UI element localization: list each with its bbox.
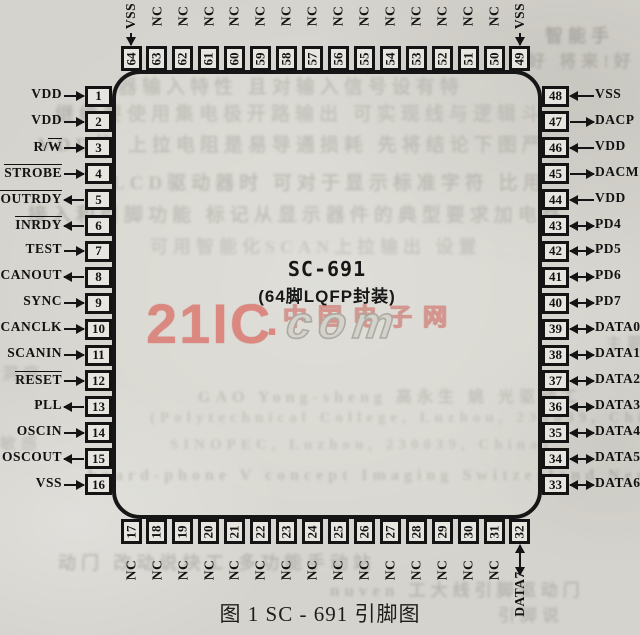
pin-direction-arrow	[570, 479, 594, 491]
pin-direction-arrow	[514, 545, 526, 575]
pin-label-rotated: NC	[201, 6, 217, 27]
pin-label-text-overlined: RESET	[15, 371, 62, 388]
pin-direction-arrow	[64, 427, 84, 439]
pin-label-text: NC	[408, 560, 423, 581]
pin-50-label: NC	[484, 0, 504, 32]
pin-direction-arrow	[570, 349, 594, 361]
pin-label-rotated: NC	[253, 560, 269, 581]
pin-label-rotated: NC	[175, 560, 191, 581]
pin-33-square: 33	[542, 474, 569, 495]
pin-40-square: 40	[542, 293, 569, 314]
pin-number: 15	[92, 451, 105, 467]
pin-12-square: 12	[85, 370, 112, 391]
pin-3-square: 3	[85, 137, 112, 158]
pin-10-square: 10	[85, 319, 112, 340]
pin-number: 42	[549, 243, 562, 259]
pin-label-text: DATA4	[595, 423, 640, 438]
pin-34-square: 34	[542, 448, 569, 469]
pin-14-square: 14	[85, 422, 112, 443]
pin-number: 51	[460, 52, 476, 65]
pin-13-square: 13	[85, 396, 112, 417]
pin-direction-arrow	[64, 220, 84, 232]
pin-direction-arrow	[64, 271, 84, 283]
pin-number: 61	[201, 52, 217, 65]
pin-number: 30	[460, 525, 476, 538]
pin-direction-arrow	[570, 245, 594, 257]
pin-16-label: VSS	[36, 475, 62, 495]
pin-label-text: NC	[201, 6, 216, 27]
pin-22-square: 22	[250, 519, 271, 544]
pin-46-label: VDD	[595, 138, 626, 158]
pin-direction-arrow	[64, 323, 84, 335]
pin-direction-arrow	[570, 297, 594, 309]
arrowhead-icon	[76, 298, 85, 308]
pin-5-square: 5	[85, 189, 112, 210]
pin-number: 21	[227, 525, 243, 538]
pin-number: 1	[95, 88, 102, 104]
pin-33-label: DATA6	[595, 475, 640, 495]
pin-label-text: NC	[227, 560, 242, 581]
pin-13-label: PLL	[34, 397, 62, 417]
pin-number: 28	[408, 525, 424, 538]
pin-label-text: DATA1	[595, 345, 640, 360]
pin-label-rotated: NC	[330, 6, 346, 27]
pin-number: 19	[175, 525, 191, 538]
pin-number: 58	[279, 52, 295, 65]
pin-55-square: 55	[354, 46, 375, 71]
pin-label-text: DATA6	[595, 475, 640, 490]
pin-42-square: 42	[542, 241, 569, 262]
pin-number: 27	[382, 525, 398, 538]
pin-label-rotated: NC	[434, 6, 450, 27]
pin-direction-arrow	[570, 453, 594, 465]
pin-number: 59	[253, 52, 269, 65]
pin-number: 5	[95, 192, 102, 208]
pin-label-text: NC	[486, 6, 501, 27]
pin-17-square: 17	[121, 519, 142, 544]
pin-number: 31	[486, 525, 502, 538]
chip-name: SC-691	[116, 257, 538, 281]
pin-direction-arrow	[570, 375, 594, 387]
pin-26-square: 26	[354, 519, 375, 544]
pin-label-text: SCANOUT	[0, 267, 62, 282]
pin-9-label: SYNC	[23, 293, 62, 313]
pin-label-text: NC	[279, 6, 294, 27]
arrowhead-icon	[586, 117, 595, 127]
pin-53-square: 53	[406, 46, 427, 71]
arrowhead-icon	[76, 246, 85, 256]
pin-28-square: 28	[406, 519, 427, 544]
pin-number: 35	[549, 425, 562, 441]
pin-21-square: 21	[224, 519, 245, 544]
arrowhead-icon	[76, 324, 85, 334]
arrowhead-icon	[569, 272, 578, 282]
pin-37-square: 37	[542, 370, 569, 391]
pin-42-label: PD5	[595, 241, 621, 261]
pin-52-label: NC	[432, 0, 452, 32]
pin-64-square: 64	[121, 46, 142, 71]
pin-14-label: OSCIN	[17, 423, 62, 443]
pin-52-square: 52	[432, 46, 453, 71]
pin-number: 55	[356, 52, 372, 65]
pin-label-rotated: NC	[175, 6, 191, 27]
pin-number: 57	[305, 52, 321, 65]
pin-label-text: NC	[175, 6, 190, 27]
arrowhead-icon	[586, 402, 595, 412]
pin-label-rotated: NC	[330, 560, 346, 581]
pin-direction-arrow	[64, 142, 84, 154]
pin-48-label: VSS	[595, 86, 621, 106]
pin-8-label: SCANOUT	[0, 267, 62, 287]
pin-17-label: NC	[121, 548, 141, 592]
pin-4-square: 4	[85, 163, 112, 184]
pin-51-square: 51	[458, 46, 479, 71]
pin-40-label: PD7	[595, 293, 621, 313]
pin-number: 44	[549, 192, 562, 208]
pin-number: 29	[434, 525, 450, 538]
arrowhead-icon	[569, 402, 578, 412]
pin-label-rotated: NC	[305, 560, 321, 581]
pin-41-square: 41	[542, 267, 569, 288]
pin-label-text-overlined: STROBE	[4, 164, 62, 181]
pin-41-label: PD6	[595, 267, 621, 287]
pin-64-label: VSS	[121, 0, 141, 32]
pin-label-text: VSS	[595, 86, 621, 101]
pin-number: 64	[123, 52, 139, 65]
pin-63-label: NC	[147, 0, 167, 32]
pin-20-label: NC	[199, 548, 219, 592]
pin-label-rotated: NC	[356, 560, 372, 581]
pin-39-label: DATA0	[595, 319, 640, 339]
pin-number: 23	[279, 525, 295, 538]
pin-number: 13	[92, 399, 105, 415]
arrowhead-icon	[126, 37, 136, 46]
pin-direction-arrow	[570, 168, 594, 180]
pin-55-label: NC	[354, 0, 374, 32]
pin-15-square: 15	[85, 448, 112, 469]
pin-59-label: NC	[251, 0, 271, 32]
pin-label-rotated: VSS	[123, 3, 139, 29]
arrowhead-icon	[569, 91, 578, 101]
pin-label-text: NC	[305, 560, 320, 581]
pin-58-label: NC	[277, 0, 297, 32]
pin-label-text: NC	[149, 560, 164, 581]
arrowhead-icon	[586, 324, 595, 334]
pin-label-text: PD6	[595, 267, 621, 282]
pin-44-square: 44	[542, 189, 569, 210]
pin-label-text: NC	[253, 560, 268, 581]
pin-label-rotated: NC	[460, 6, 476, 27]
arrowhead-icon	[569, 454, 578, 464]
pin-31-square: 31	[484, 519, 505, 544]
pin-47-label: DACP	[595, 112, 635, 132]
pin-direction-arrow	[64, 168, 84, 180]
pin-number: 41	[549, 269, 562, 285]
pin-number: 32	[512, 525, 528, 538]
pin-1-label: VDD	[31, 86, 62, 106]
pin-label-text: DACM	[595, 164, 639, 179]
pin-number: 62	[175, 52, 191, 65]
pin-label-rotated: NC	[253, 6, 269, 27]
pin-direction-arrow	[570, 401, 594, 413]
pin-direction-arrow	[64, 194, 84, 206]
pin-34-label: DATA5	[595, 449, 640, 469]
pin-16-square: 16	[85, 474, 112, 495]
pin-label-rotated: NC	[279, 6, 295, 27]
arrowhead-icon	[76, 91, 85, 101]
pin-27-label: NC	[380, 548, 400, 592]
pin-direction-arrow	[64, 401, 84, 413]
pin-25-label: NC	[328, 548, 348, 592]
pin-number: 43	[549, 218, 562, 234]
pin-label-rotated: NC	[382, 6, 398, 27]
pin-label-text: NC	[253, 6, 268, 27]
pin-32-square: 32	[509, 519, 530, 544]
pin-35-square: 35	[542, 422, 569, 443]
pin-57-label: NC	[303, 0, 323, 32]
pin-1-square: 1	[85, 86, 112, 107]
pin-60-square: 60	[224, 46, 245, 71]
arrowhead-icon	[63, 272, 72, 282]
pin-number: 9	[95, 295, 102, 311]
pin-label-text: NC	[227, 6, 242, 27]
pin-59-square: 59	[250, 46, 271, 71]
pin-54-label: NC	[380, 0, 400, 32]
pin-label-text: PD4	[595, 216, 621, 231]
pin-number: 25	[330, 525, 346, 538]
pin-label-text-overlined: OUTRDY	[0, 190, 62, 207]
pin-21-label: NC	[225, 548, 245, 592]
pin-label-text: DATA0	[595, 319, 640, 334]
arrowhead-icon	[586, 298, 595, 308]
pin-46-square: 46	[542, 137, 569, 158]
pin-19-square: 19	[172, 519, 193, 544]
pin-label-text: DATA5	[595, 449, 640, 464]
pin-7-square: 7	[85, 241, 112, 262]
pin-60-label: NC	[225, 0, 245, 32]
pin-label-text-overlined: INRDY	[15, 216, 62, 233]
figure-caption: 图 1 SC - 691 引脚图	[0, 598, 640, 628]
pin-6-square: 6	[85, 215, 112, 236]
pin-38-square: 38	[542, 345, 569, 366]
pin-61-square: 61	[198, 46, 219, 71]
pin-direction-arrow	[570, 323, 594, 335]
pin-61-label: NC	[199, 0, 219, 32]
pin-23-square: 23	[276, 519, 297, 544]
arrowhead-icon	[63, 195, 72, 205]
pin-56-square: 56	[328, 46, 349, 71]
pin-54-square: 54	[380, 46, 401, 71]
pin-57-square: 57	[302, 46, 323, 71]
arrowhead-icon	[63, 221, 72, 231]
pin-direction-arrow	[570, 90, 594, 102]
pin-9-square: 9	[85, 293, 112, 314]
pin-5-label: OUTRDY	[0, 190, 62, 210]
pin-number: 16	[92, 477, 105, 493]
pin-47-square: 47	[542, 111, 569, 132]
pin-number: 11	[92, 347, 104, 363]
pin-label-text: NC	[460, 560, 475, 581]
pin-label-text: OSCIN	[17, 423, 62, 438]
pin-29-label: NC	[432, 548, 452, 592]
arrowhead-icon	[586, 428, 595, 438]
pin-18-square: 18	[146, 519, 167, 544]
pin-label-text: NC	[149, 6, 164, 27]
pin-direction-arrow	[570, 142, 594, 154]
pin-number: 56	[330, 52, 346, 65]
pin-38-label: DATA1	[595, 345, 640, 365]
pin-4-label: STROBE	[4, 164, 62, 184]
pin-label-rotated: NC	[434, 560, 450, 581]
pin-36-square: 36	[542, 396, 569, 417]
pin-number: 22	[253, 525, 269, 538]
pin-label-text: VSS	[512, 3, 527, 29]
pin-number: 8	[95, 269, 102, 285]
arrowhead-icon	[569, 350, 578, 360]
pin-direction-arrow	[570, 427, 594, 439]
pin-2-square: 2	[85, 111, 112, 132]
pin-number: 18	[149, 525, 165, 538]
pin-19-label: NC	[173, 548, 193, 592]
pin-direction-arrow	[64, 479, 84, 491]
pin-10-label: SCANCLK	[0, 319, 62, 339]
arrowhead-icon	[569, 143, 578, 153]
arrowhead-icon	[515, 544, 525, 553]
pin-20-square: 20	[198, 519, 219, 544]
pin-6-label: INRDY	[15, 216, 62, 236]
pin-number: 36	[549, 399, 562, 415]
arrowhead-icon	[76, 350, 85, 360]
pin-direction-arrow	[64, 116, 84, 128]
pin-18-label: NC	[147, 548, 167, 592]
pin-label-text: VDD	[595, 138, 626, 153]
pin-37-label: DATA2	[595, 371, 640, 391]
pin-number: 4	[95, 166, 102, 182]
pin-43-label: PD4	[595, 216, 621, 236]
pin-number: 17	[123, 525, 139, 538]
pin-label-text: NC	[382, 6, 397, 27]
pin-number: 10	[92, 321, 105, 337]
pin-number: 49	[512, 52, 528, 65]
pin-label-rotated: NC	[486, 560, 502, 581]
pin-12-label: RESET	[15, 371, 62, 391]
pin-label-text: NC	[382, 560, 397, 581]
pin-39-square: 39	[542, 319, 569, 340]
arrowhead-icon	[586, 272, 595, 282]
pin-label-text: NC	[486, 560, 501, 581]
pin-label-text: SCANCLK	[0, 319, 62, 334]
arrowhead-icon	[515, 37, 525, 46]
pin-number: 52	[434, 52, 450, 65]
pin-62-square: 62	[172, 46, 193, 71]
arrowhead-icon	[586, 376, 595, 386]
pin-label-text: NC	[408, 6, 423, 27]
pin-direction-arrow	[514, 33, 526, 45]
pin-number: 26	[356, 525, 372, 538]
pin-8-square: 8	[85, 267, 112, 288]
pin-label-rotated: NC	[227, 560, 243, 581]
pin-62-label: NC	[173, 0, 193, 32]
pin-number: 12	[92, 373, 105, 389]
pin-number: 37	[549, 373, 562, 389]
pin-49-square: 49	[509, 46, 530, 71]
pin-label-text-overlined: W	[48, 138, 62, 155]
pin-label-text: SYNC	[23, 293, 62, 308]
arrowhead-icon	[586, 169, 595, 179]
pin-label-text: NC	[201, 560, 216, 581]
pin-number: 46	[549, 140, 562, 156]
pin-number: 47	[549, 114, 562, 130]
pin-63-square: 63	[146, 46, 167, 71]
pin-label-text: NC	[356, 6, 371, 27]
pin-27-square: 27	[380, 519, 401, 544]
pin-label-text: NC	[123, 560, 138, 581]
arrowhead-icon	[569, 480, 578, 490]
pin-direction-arrow	[570, 194, 594, 206]
pin-number: 50	[486, 52, 502, 65]
arrowhead-icon	[76, 169, 85, 179]
pin-direction-arrow	[570, 271, 594, 283]
pin-label-text: TEST	[25, 241, 62, 256]
arrowhead-icon	[515, 567, 525, 576]
pin-label-text: VDD	[31, 86, 62, 101]
arrowhead-icon	[76, 480, 85, 490]
pin-number: 39	[549, 321, 562, 337]
pin-23-label: NC	[277, 548, 297, 592]
pin-48-square: 48	[542, 86, 569, 107]
pin-direction-arrow	[125, 33, 137, 45]
pin-label-text: VDD	[595, 190, 626, 205]
pin-label-rotated: NC	[227, 6, 243, 27]
pin-25-square: 25	[328, 519, 349, 544]
pin-label-rotated: NC	[149, 6, 165, 27]
pin-number: 48	[549, 88, 562, 104]
pin-label-rotated: NC	[149, 560, 165, 581]
pin-direction-arrow	[570, 220, 594, 232]
pin-number: 14	[92, 425, 105, 441]
pin-label-text: SCANIN	[7, 345, 62, 360]
pin-label-rotated: NC	[408, 6, 424, 27]
pin-label-rotated: VSS	[512, 3, 528, 29]
pin-44-label: VDD	[595, 190, 626, 210]
pin-label-rotated: NC	[279, 560, 295, 581]
pin-50-square: 50	[484, 46, 505, 71]
pin-label-text: DATA3	[595, 397, 640, 412]
pin-49-label: VSS	[510, 0, 530, 32]
scanned-datasheet-page: 器输入特性 且对输入信号设有特继续要使用集电极开路输出 可实现线与逻辑斗VDD的…	[0, 0, 640, 635]
pin-number: 24	[305, 525, 321, 538]
pin-number: 45	[549, 166, 562, 182]
pin-direction-arrow	[64, 90, 84, 102]
pin-label-text: NC	[330, 560, 345, 581]
pin-2-label: VDD	[31, 112, 62, 132]
arrowhead-icon	[76, 376, 85, 386]
pin-35-label: DATA4	[595, 423, 640, 443]
pin-label-text: PD5	[595, 241, 621, 256]
pin-15-label: OSCOUT	[2, 449, 62, 469]
pin-label-rotated: NC	[486, 6, 502, 27]
chip-outline: SC-691 (64脚LQFP封装)	[112, 70, 542, 519]
pin-56-label: NC	[328, 0, 348, 32]
pin-label-rotated: NC	[460, 560, 476, 581]
pin-label-text: OSCOUT	[2, 449, 62, 464]
arrowhead-icon	[586, 454, 595, 464]
pin-label-rotated: NC	[356, 6, 372, 27]
pin-number: 63	[149, 52, 165, 65]
pin-direction-arrow	[64, 375, 84, 387]
arrowhead-icon	[586, 480, 595, 490]
arrowhead-icon	[569, 428, 578, 438]
